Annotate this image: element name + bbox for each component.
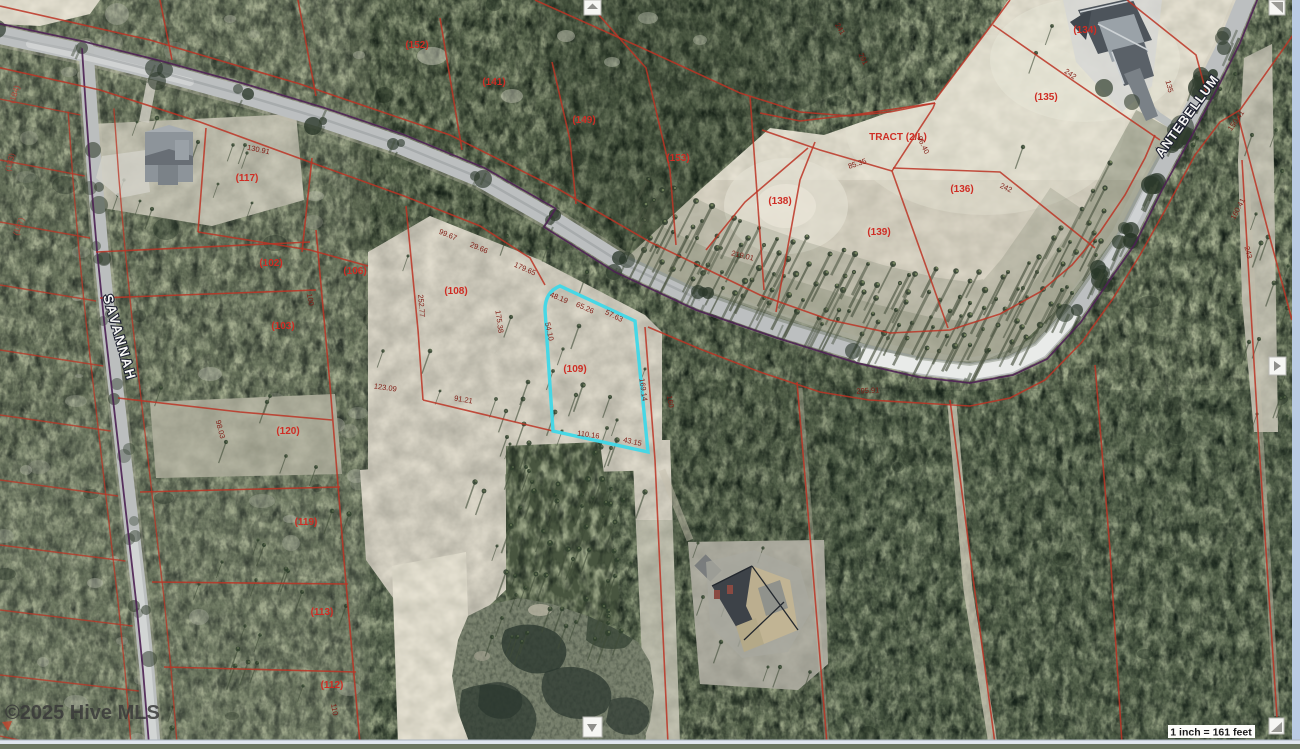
svg-text:(120): (120) xyxy=(276,426,299,437)
svg-text:(103): (103) xyxy=(271,321,294,332)
svg-text:(119): (119) xyxy=(295,517,318,528)
svg-text:1 inch = 161 feet: 1 inch = 161 feet xyxy=(1170,727,1252,739)
svg-text:(139): (139) xyxy=(867,227,890,238)
svg-text:295.91: 295.91 xyxy=(856,385,879,395)
svg-text:(106): (106) xyxy=(343,266,366,277)
svg-text:(153): (153) xyxy=(666,153,689,164)
svg-text:(109): (109) xyxy=(563,364,586,375)
svg-text:(117): (117) xyxy=(236,173,259,184)
svg-text:(108): (108) xyxy=(444,286,467,297)
svg-text:(134): (134) xyxy=(1073,25,1096,36)
svg-text:(136): (136) xyxy=(950,184,973,195)
svg-text:(152): (152) xyxy=(405,40,428,51)
svg-text:©2025 Hive MLS: ©2025 Hive MLS xyxy=(5,702,160,724)
svg-text:(141): (141) xyxy=(482,77,505,88)
svg-text:(113): (113) xyxy=(311,607,334,618)
svg-text:(135): (135) xyxy=(1034,92,1057,103)
svg-text:(102): (102) xyxy=(259,258,282,269)
svg-text:(112): (112) xyxy=(321,680,344,691)
svg-text:(138): (138) xyxy=(768,196,791,207)
svg-text:(149): (149) xyxy=(572,115,595,126)
